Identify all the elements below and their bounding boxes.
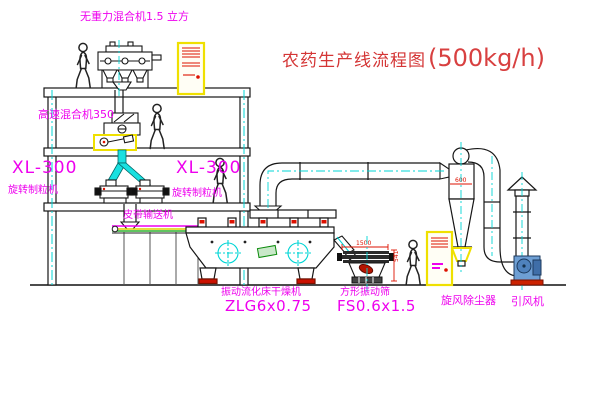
conveyor-legs — [124, 232, 198, 285]
granulator-right-model-label: XL-300 — [176, 160, 241, 177]
fan-label: 引风机 — [511, 296, 544, 307]
gravity-free-mixer — [98, 40, 161, 113]
granulator-right-name-label: 旋转制粒机 — [172, 189, 222, 199]
person-icon — [76, 43, 90, 87]
main-duct — [255, 162, 449, 214]
dryer-inlet-stubs — [198, 218, 328, 227]
page-title: 农药生产线流程图 (500kg/h) — [282, 44, 545, 72]
sieve-height-dim: 541 — [393, 250, 400, 262]
title-capacity: (500kg/h) — [428, 44, 545, 72]
title-text: 农药生产线流程图 — [282, 46, 426, 71]
dryer-model-label: ZLG6x0.75 — [225, 299, 312, 314]
sieve-length-dim: 1500 — [356, 240, 371, 247]
rotary-granulators — [95, 180, 169, 203]
control-cabinet-upper — [178, 43, 204, 94]
gravity-mixer-label: 无重力混合机1.5 立方 — [80, 11, 189, 22]
cyclone-label: 旋风除尘器 — [441, 295, 496, 306]
person-icon — [406, 240, 420, 284]
belt-conveyor-label: 皮带输送机 — [123, 211, 173, 221]
granulator-left-model-label: XL-300 — [12, 160, 77, 177]
pesticide-production-line-diagram: 1500 541 600 — [0, 0, 600, 403]
high-speed-mixer-label: 高速混合机350 — [38, 109, 114, 120]
granulator-left-name-label: 旋转制粒机 — [8, 186, 58, 196]
fluid-bed-dryer — [186, 210, 336, 284]
induced-draft-fan — [511, 256, 543, 285]
control-cabinet-lower — [427, 232, 452, 285]
sieve-model-label: FS0.6x1.5 — [337, 299, 416, 314]
person-icon — [150, 104, 164, 148]
